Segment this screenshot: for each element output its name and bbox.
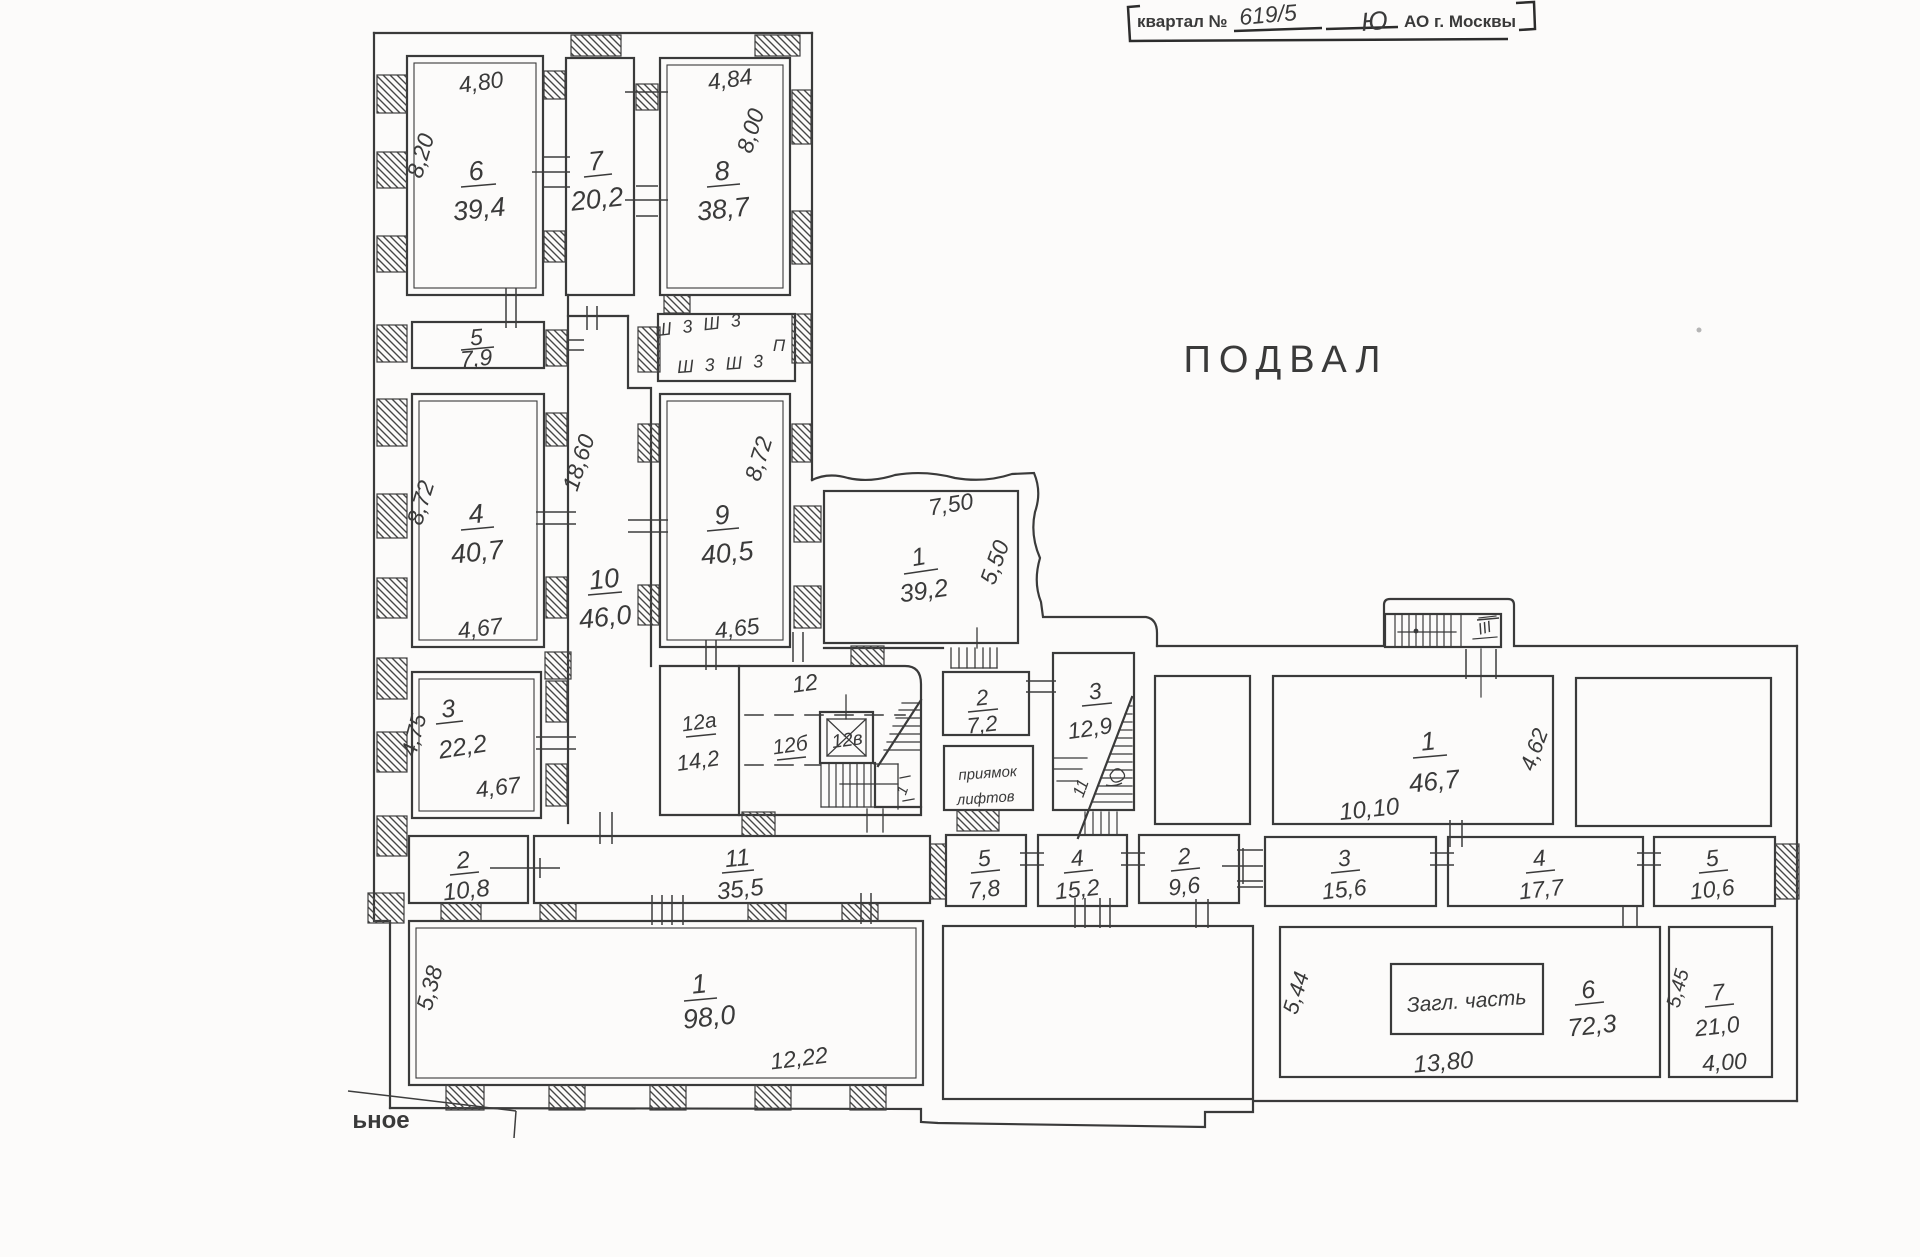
svg-text:АО г. Москвы: АО г. Москвы <box>1404 12 1516 31</box>
svg-text:9,6: 9,6 <box>1167 871 1202 900</box>
svg-text:619/5: 619/5 <box>1238 0 1298 30</box>
svg-text:4: 4 <box>1069 844 1084 871</box>
svg-text:38,7: 38,7 <box>695 191 751 226</box>
svg-text:7,8: 7,8 <box>967 874 1002 903</box>
svg-text:12в: 12в <box>830 728 864 753</box>
svg-text:35,5: 35,5 <box>716 874 766 906</box>
svg-text:2: 2 <box>974 684 990 710</box>
svg-text:12а: 12а <box>680 709 718 737</box>
svg-text:квартал №: квартал № <box>1137 12 1228 31</box>
svg-text:7,2: 7,2 <box>966 711 999 739</box>
svg-text:46,0: 46,0 <box>577 599 632 634</box>
svg-text:4,67: 4,67 <box>456 612 505 643</box>
svg-text:20,2: 20,2 <box>568 181 624 216</box>
svg-text:Ю: Ю <box>1360 5 1389 37</box>
svg-text:39,4: 39,4 <box>451 191 506 226</box>
svg-text:ьное: ьное <box>352 1107 409 1134</box>
svg-text:П: П <box>773 336 786 355</box>
svg-text:4,67: 4,67 <box>474 771 523 802</box>
svg-text:2: 2 <box>1175 842 1192 869</box>
svg-text:40,7: 40,7 <box>449 534 505 569</box>
svg-text:10,8: 10,8 <box>442 875 492 907</box>
svg-text:17,7: 17,7 <box>1518 874 1566 905</box>
svg-text:15,2: 15,2 <box>1054 874 1101 905</box>
svg-text:2: 2 <box>454 846 471 874</box>
svg-text:4,00: 4,00 <box>1701 1047 1748 1076</box>
svg-text:9: 9 <box>713 499 731 530</box>
svg-text:13,80: 13,80 <box>1412 1046 1475 1078</box>
svg-text:98,0: 98,0 <box>681 999 736 1034</box>
svg-text:4: 4 <box>467 498 485 529</box>
svg-text:40,5: 40,5 <box>699 535 755 570</box>
svg-text:12: 12 <box>790 668 819 697</box>
svg-text:21,0: 21,0 <box>1693 1011 1741 1042</box>
svg-text:10: 10 <box>588 563 621 596</box>
svg-text:46,7: 46,7 <box>1407 763 1462 798</box>
svg-text:ПОДВАЛ: ПОДВАЛ <box>1184 339 1389 381</box>
svg-text:72,3: 72,3 <box>1566 1010 1617 1043</box>
svg-text:15,6: 15,6 <box>1321 874 1368 905</box>
svg-text:10,6: 10,6 <box>1689 874 1736 905</box>
svg-text:11: 11 <box>723 844 751 873</box>
svg-text:1: 1 <box>690 968 708 999</box>
svg-text:4,65: 4,65 <box>713 612 761 643</box>
svg-text:8: 8 <box>713 155 731 186</box>
svg-text:4: 4 <box>1531 844 1546 871</box>
